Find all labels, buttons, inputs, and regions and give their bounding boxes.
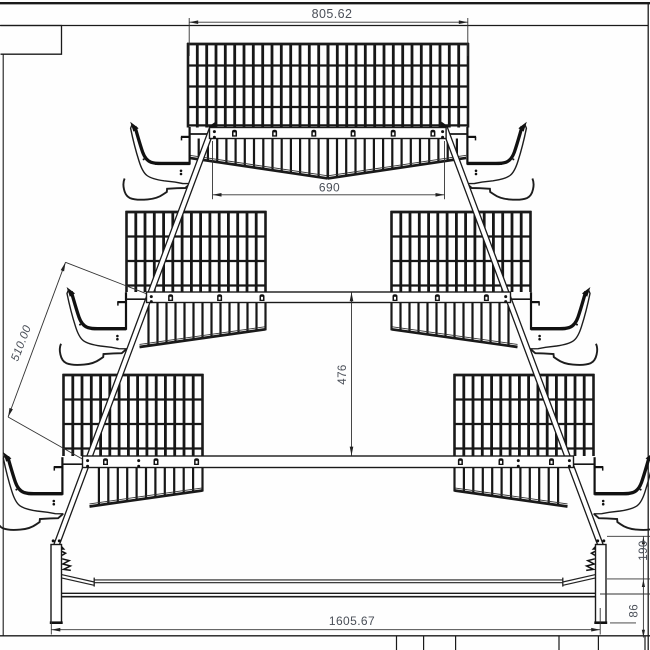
svg-text:190: 190 xyxy=(638,540,650,560)
svg-text:476: 476 xyxy=(337,364,349,384)
svg-text:1605.67: 1605.67 xyxy=(329,614,375,628)
svg-text:86: 86 xyxy=(629,604,641,618)
svg-text:690: 690 xyxy=(319,181,340,195)
svg-text:805.62: 805.62 xyxy=(312,7,353,21)
